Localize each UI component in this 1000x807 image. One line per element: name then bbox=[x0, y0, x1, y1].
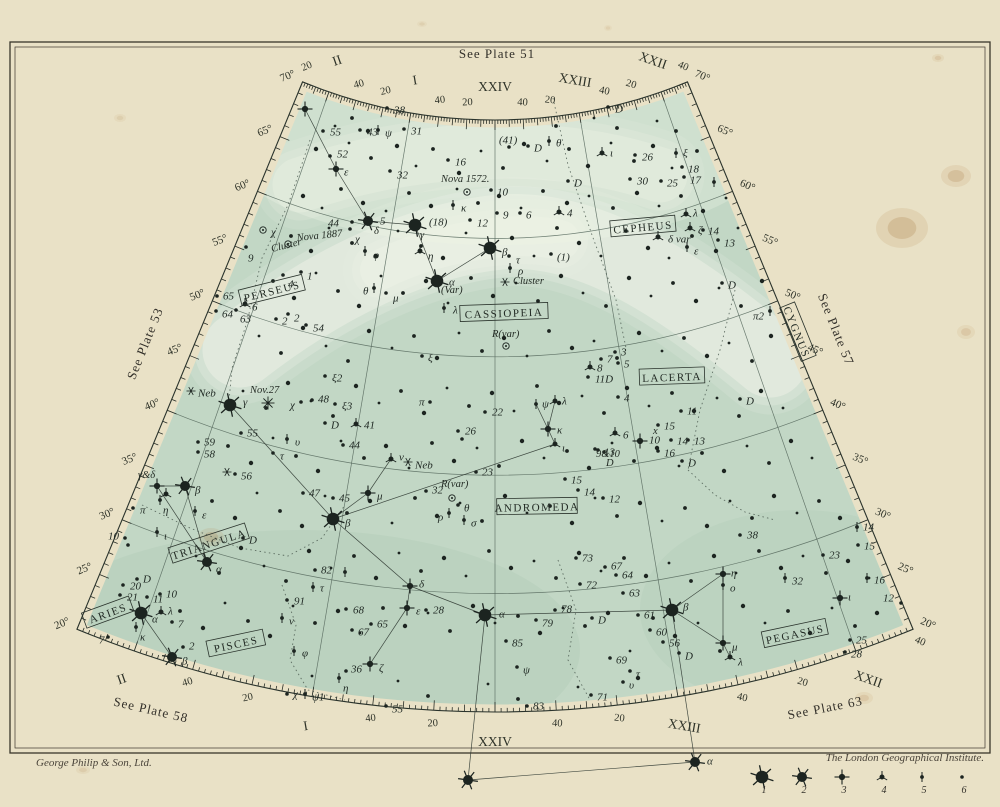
field-star bbox=[520, 207, 523, 210]
star-label: ι bbox=[610, 148, 613, 160]
star bbox=[344, 669, 348, 673]
star bbox=[603, 565, 607, 569]
field-star bbox=[587, 466, 591, 470]
star bbox=[716, 238, 720, 242]
star-label: 36 bbox=[350, 664, 363, 676]
star bbox=[628, 177, 632, 181]
field-star bbox=[577, 686, 580, 689]
field-star bbox=[350, 116, 354, 120]
star-label: γ bbox=[243, 397, 248, 409]
star bbox=[181, 645, 185, 649]
star-label: 26 bbox=[642, 152, 654, 164]
star-label: θ bbox=[464, 503, 470, 515]
field-star bbox=[678, 465, 681, 468]
star-label: 69 bbox=[616, 655, 628, 667]
field-star bbox=[635, 191, 639, 195]
field-star bbox=[600, 570, 603, 573]
field-star bbox=[757, 549, 761, 553]
field-star bbox=[701, 209, 705, 213]
star bbox=[526, 144, 530, 148]
field-star bbox=[348, 142, 351, 145]
star bbox=[244, 245, 248, 249]
star bbox=[628, 669, 632, 673]
star bbox=[369, 622, 373, 626]
field-star bbox=[772, 494, 776, 498]
field-star bbox=[611, 442, 614, 445]
field-star bbox=[769, 334, 773, 338]
star bbox=[495, 211, 499, 215]
star bbox=[456, 429, 460, 433]
star-label: 45 bbox=[339, 493, 351, 505]
field-star bbox=[441, 256, 445, 260]
field-star bbox=[480, 349, 484, 353]
field-star bbox=[615, 514, 619, 518]
star bbox=[344, 607, 348, 611]
star bbox=[333, 402, 337, 406]
field-star bbox=[692, 409, 696, 413]
field-star bbox=[679, 194, 683, 198]
field-star bbox=[408, 467, 411, 470]
field-star bbox=[357, 304, 361, 308]
star-label: φ bbox=[302, 648, 308, 660]
field-star bbox=[395, 144, 399, 148]
star-label: 23 bbox=[829, 550, 841, 562]
star-label: κ bbox=[140, 632, 146, 644]
field-star bbox=[264, 406, 268, 410]
star bbox=[525, 704, 529, 708]
field-star bbox=[526, 355, 529, 358]
field-star bbox=[562, 607, 565, 610]
star-label: ι bbox=[562, 443, 565, 455]
star bbox=[680, 165, 684, 169]
star-label: 2 bbox=[189, 641, 195, 653]
star bbox=[274, 317, 278, 321]
star bbox=[215, 294, 219, 298]
star bbox=[285, 692, 289, 696]
field-star bbox=[831, 607, 834, 610]
star-label: 58 bbox=[204, 449, 216, 461]
star-label: D bbox=[684, 651, 693, 663]
field-star bbox=[407, 191, 411, 195]
field-star bbox=[471, 604, 475, 608]
star-label: 1 bbox=[307, 271, 313, 283]
star-label: 28 bbox=[433, 605, 445, 617]
star bbox=[720, 281, 724, 285]
star-label: 12 bbox=[883, 593, 895, 605]
field-star bbox=[644, 574, 648, 578]
field-star bbox=[442, 556, 446, 560]
field-star bbox=[226, 444, 230, 448]
star-label: 23 bbox=[482, 467, 494, 479]
star-label: 28 bbox=[851, 649, 863, 661]
ra-hour-label: XXIV bbox=[478, 79, 512, 94]
field-star bbox=[380, 275, 383, 278]
field-star bbox=[258, 335, 261, 338]
field-star bbox=[593, 117, 596, 120]
field-star bbox=[638, 501, 642, 505]
page: { "header": { "series_title": "Ball's Po… bbox=[0, 0, 1000, 807]
star-label: 82 bbox=[321, 565, 333, 577]
star bbox=[384, 704, 388, 708]
star-label: 54 bbox=[313, 323, 325, 335]
field-star bbox=[494, 622, 497, 625]
field-star bbox=[565, 201, 569, 205]
field-star bbox=[446, 387, 449, 390]
star bbox=[323, 374, 327, 378]
ra-hour-label: XXIV bbox=[478, 734, 512, 749]
field-star bbox=[367, 329, 371, 333]
star-label: 38 bbox=[393, 105, 406, 117]
star-label: 79 bbox=[542, 618, 554, 630]
star bbox=[214, 309, 218, 313]
star-label: 64 bbox=[222, 309, 234, 321]
star-label: α bbox=[152, 614, 158, 626]
field-star bbox=[586, 164, 590, 168]
annotation: x bbox=[652, 426, 658, 437]
star bbox=[285, 598, 289, 602]
star bbox=[848, 638, 852, 642]
field-star bbox=[656, 120, 659, 123]
star-label: π bbox=[140, 505, 146, 517]
star-label: υ bbox=[295, 437, 300, 449]
field-star bbox=[602, 411, 606, 415]
star bbox=[578, 582, 582, 586]
field-star bbox=[611, 206, 615, 210]
stain bbox=[117, 116, 124, 120]
star bbox=[856, 543, 860, 547]
legend-magnitude-item bbox=[960, 775, 964, 779]
field-star bbox=[321, 207, 324, 210]
star-label: 15 bbox=[571, 475, 583, 487]
publisher-imprint: George Philip & Son, Ltd. bbox=[36, 757, 152, 769]
star-label: λ bbox=[561, 396, 567, 408]
star-label: λ bbox=[692, 208, 698, 220]
star bbox=[534, 618, 538, 622]
star-label: ι bbox=[164, 531, 167, 543]
star-label: 67 bbox=[611, 561, 623, 573]
field-star bbox=[838, 516, 842, 520]
star bbox=[196, 440, 200, 444]
annotation: Nov.27 bbox=[249, 385, 280, 396]
star-label: 83 bbox=[533, 701, 545, 713]
field-star bbox=[284, 579, 288, 583]
field-star bbox=[217, 571, 221, 575]
stain bbox=[606, 26, 610, 29]
star bbox=[518, 211, 522, 215]
field-star bbox=[279, 351, 283, 355]
legend-magnitude-number: 5 bbox=[922, 785, 927, 796]
star bbox=[682, 175, 686, 179]
field-star bbox=[513, 410, 516, 413]
field-star bbox=[786, 609, 790, 613]
star bbox=[507, 254, 511, 258]
star bbox=[402, 127, 406, 131]
field-star bbox=[490, 391, 494, 395]
field-star bbox=[313, 621, 317, 625]
field-star bbox=[739, 304, 743, 308]
star-label: λ bbox=[167, 606, 173, 618]
star bbox=[341, 443, 345, 447]
star-label: 4 bbox=[567, 208, 573, 220]
star bbox=[489, 188, 493, 192]
field-star bbox=[817, 499, 821, 503]
field-star bbox=[875, 611, 879, 615]
star-label: 14 bbox=[863, 522, 875, 534]
field-star bbox=[345, 511, 349, 515]
star-label: ψ bbox=[542, 399, 549, 411]
field-star bbox=[300, 524, 304, 528]
star-label: ψ1 bbox=[312, 692, 324, 704]
star-label: ε bbox=[344, 167, 349, 179]
star bbox=[158, 592, 162, 596]
star bbox=[680, 459, 684, 463]
field-star bbox=[178, 609, 182, 613]
field-star bbox=[555, 226, 559, 230]
ra-minute-label: 40 bbox=[517, 97, 528, 109]
star-label: β bbox=[194, 485, 201, 497]
field-star bbox=[336, 609, 340, 613]
star-label: θ bbox=[363, 286, 369, 298]
star-label: 12 bbox=[477, 218, 489, 230]
star-label: 63 bbox=[629, 588, 641, 600]
star bbox=[262, 397, 275, 410]
star-label: δ var bbox=[668, 234, 691, 246]
field-star bbox=[350, 241, 354, 245]
field-star bbox=[759, 389, 763, 393]
star-label: 63 bbox=[240, 314, 252, 326]
field-star bbox=[467, 404, 471, 408]
star bbox=[299, 400, 303, 404]
field-star bbox=[426, 694, 430, 698]
star-label: D bbox=[614, 104, 623, 116]
field-star bbox=[352, 554, 356, 558]
field-star bbox=[625, 386, 629, 390]
star-label: 16 bbox=[455, 157, 467, 169]
star-label: 56 bbox=[669, 638, 681, 650]
star-label: 3 bbox=[620, 347, 627, 359]
star bbox=[424, 489, 428, 493]
star bbox=[304, 323, 308, 327]
field-star bbox=[594, 497, 597, 500]
field-star bbox=[682, 336, 686, 340]
field-star bbox=[397, 680, 400, 683]
star bbox=[123, 536, 127, 540]
field-star bbox=[796, 512, 799, 515]
star-label: 12 bbox=[609, 494, 621, 506]
star bbox=[616, 395, 620, 399]
star bbox=[586, 375, 590, 379]
field-star bbox=[670, 391, 674, 395]
field-star bbox=[384, 444, 388, 448]
stain bbox=[935, 56, 942, 60]
field-star bbox=[547, 329, 551, 333]
field-star bbox=[615, 126, 619, 130]
field-star bbox=[846, 559, 850, 563]
star bbox=[899, 601, 903, 605]
field-star bbox=[668, 562, 671, 565]
stain bbox=[419, 22, 425, 25]
star bbox=[616, 361, 620, 365]
field-star bbox=[750, 359, 754, 363]
star-label: 59 bbox=[204, 437, 216, 449]
field-star bbox=[497, 464, 501, 468]
field-star bbox=[325, 345, 328, 348]
field-star bbox=[401, 291, 405, 295]
star-label: κ bbox=[557, 425, 563, 437]
field-star bbox=[767, 461, 771, 465]
field-star bbox=[246, 619, 250, 623]
field-star bbox=[615, 356, 619, 360]
field-star bbox=[435, 356, 439, 360]
stain bbox=[961, 328, 971, 336]
field-star bbox=[674, 129, 678, 133]
field-star bbox=[533, 560, 536, 563]
star-label: 2 bbox=[282, 316, 288, 328]
field-star bbox=[509, 566, 513, 570]
field-star bbox=[604, 304, 608, 308]
star-label: 41 bbox=[364, 420, 375, 432]
star-label: ε bbox=[694, 246, 699, 258]
field-star bbox=[399, 389, 403, 393]
star-label: 25 bbox=[856, 635, 868, 647]
field-star bbox=[582, 292, 585, 295]
field-star bbox=[398, 552, 401, 555]
field-star bbox=[570, 521, 574, 525]
annotation: Nova 1572. bbox=[440, 174, 489, 185]
field-star bbox=[636, 676, 640, 680]
star-label: 72 bbox=[586, 580, 598, 592]
field-star bbox=[671, 167, 674, 170]
star-label: μ bbox=[392, 293, 399, 305]
star-label: Neb bbox=[197, 388, 216, 400]
field-star bbox=[431, 147, 435, 151]
field-star bbox=[397, 230, 400, 233]
star bbox=[468, 218, 472, 222]
field-star bbox=[764, 622, 767, 625]
field-star bbox=[263, 565, 266, 568]
field-star bbox=[242, 390, 245, 393]
field-star bbox=[716, 397, 719, 400]
field-star bbox=[339, 187, 343, 191]
star-label: 14 bbox=[677, 436, 689, 448]
field-star bbox=[737, 227, 740, 230]
legend-magnitude-number: 1 bbox=[762, 785, 767, 796]
field-star bbox=[448, 629, 452, 633]
field-star bbox=[588, 195, 591, 198]
star bbox=[350, 220, 354, 224]
star-label: 65 bbox=[377, 619, 389, 631]
field-star bbox=[750, 516, 754, 520]
field-star bbox=[746, 445, 749, 448]
star-label: 85 bbox=[512, 638, 524, 650]
star-label: 22 bbox=[492, 407, 504, 419]
star-label: 11 bbox=[153, 594, 163, 606]
legend-magnitude-number: 2 bbox=[802, 785, 807, 796]
annotation: Cluster bbox=[513, 276, 545, 287]
field-star bbox=[324, 495, 327, 498]
star bbox=[566, 179, 570, 183]
field-star bbox=[487, 683, 490, 686]
star bbox=[504, 639, 508, 643]
star bbox=[679, 409, 683, 413]
field-star bbox=[668, 257, 671, 260]
field-star bbox=[419, 244, 423, 248]
star-label: 65 bbox=[223, 291, 235, 303]
field-star bbox=[725, 197, 728, 200]
star bbox=[384, 291, 388, 295]
star-label: 5 bbox=[380, 216, 386, 228]
star-label: 64 bbox=[622, 570, 634, 582]
field-star bbox=[695, 149, 699, 153]
star bbox=[323, 421, 327, 425]
field-star bbox=[465, 575, 468, 578]
field-star bbox=[374, 576, 378, 580]
field-star bbox=[697, 622, 700, 625]
star-label: 13 bbox=[724, 238, 736, 250]
legend-magnitude-number: 6 bbox=[962, 785, 967, 796]
star bbox=[385, 106, 389, 110]
field-star bbox=[315, 272, 318, 275]
star bbox=[271, 451, 275, 455]
field-star bbox=[480, 150, 483, 153]
star-label: 2 bbox=[294, 313, 300, 325]
star-label: ψ bbox=[385, 128, 392, 140]
field-star bbox=[557, 401, 561, 405]
star-label: β bbox=[682, 602, 689, 614]
constellation-name: ANDROMEDA bbox=[494, 501, 579, 514]
star-label: (41) bbox=[499, 135, 518, 147]
legend-magnitude-number: 3 bbox=[841, 785, 847, 796]
annotation: R(var) bbox=[440, 479, 469, 490]
field-star bbox=[737, 414, 741, 418]
star bbox=[738, 397, 742, 401]
field-star bbox=[503, 494, 507, 498]
star-label: 9 bbox=[248, 253, 254, 265]
star bbox=[331, 496, 335, 500]
field-star bbox=[210, 499, 214, 503]
star-label: π2 bbox=[753, 311, 765, 323]
field-star bbox=[310, 400, 313, 403]
field-star bbox=[651, 144, 655, 148]
field-star bbox=[718, 287, 721, 290]
field-star bbox=[289, 234, 293, 238]
field-star bbox=[301, 194, 305, 198]
star bbox=[234, 308, 238, 312]
field-star bbox=[452, 459, 456, 463]
field-star bbox=[309, 249, 313, 253]
star-label: ε bbox=[202, 510, 207, 522]
star-label: (18) bbox=[429, 217, 448, 229]
field-star bbox=[476, 447, 479, 450]
star-label: 6 bbox=[623, 430, 629, 442]
star-label: 38 bbox=[746, 530, 759, 542]
star-label: 47 bbox=[309, 488, 321, 500]
field-star bbox=[811, 457, 814, 460]
star-label: ψ bbox=[523, 665, 530, 677]
stain bbox=[948, 170, 965, 182]
field-star bbox=[368, 499, 372, 503]
star-label: ε bbox=[416, 606, 421, 618]
star bbox=[574, 556, 578, 560]
field-star bbox=[268, 634, 272, 638]
field-star bbox=[422, 411, 426, 415]
star bbox=[170, 620, 174, 624]
ra-minute-label: 40 bbox=[434, 94, 446, 106]
star-label: D bbox=[248, 535, 257, 547]
star-label: η bbox=[343, 683, 348, 695]
star-label: 7 bbox=[607, 354, 613, 366]
star bbox=[328, 154, 332, 158]
